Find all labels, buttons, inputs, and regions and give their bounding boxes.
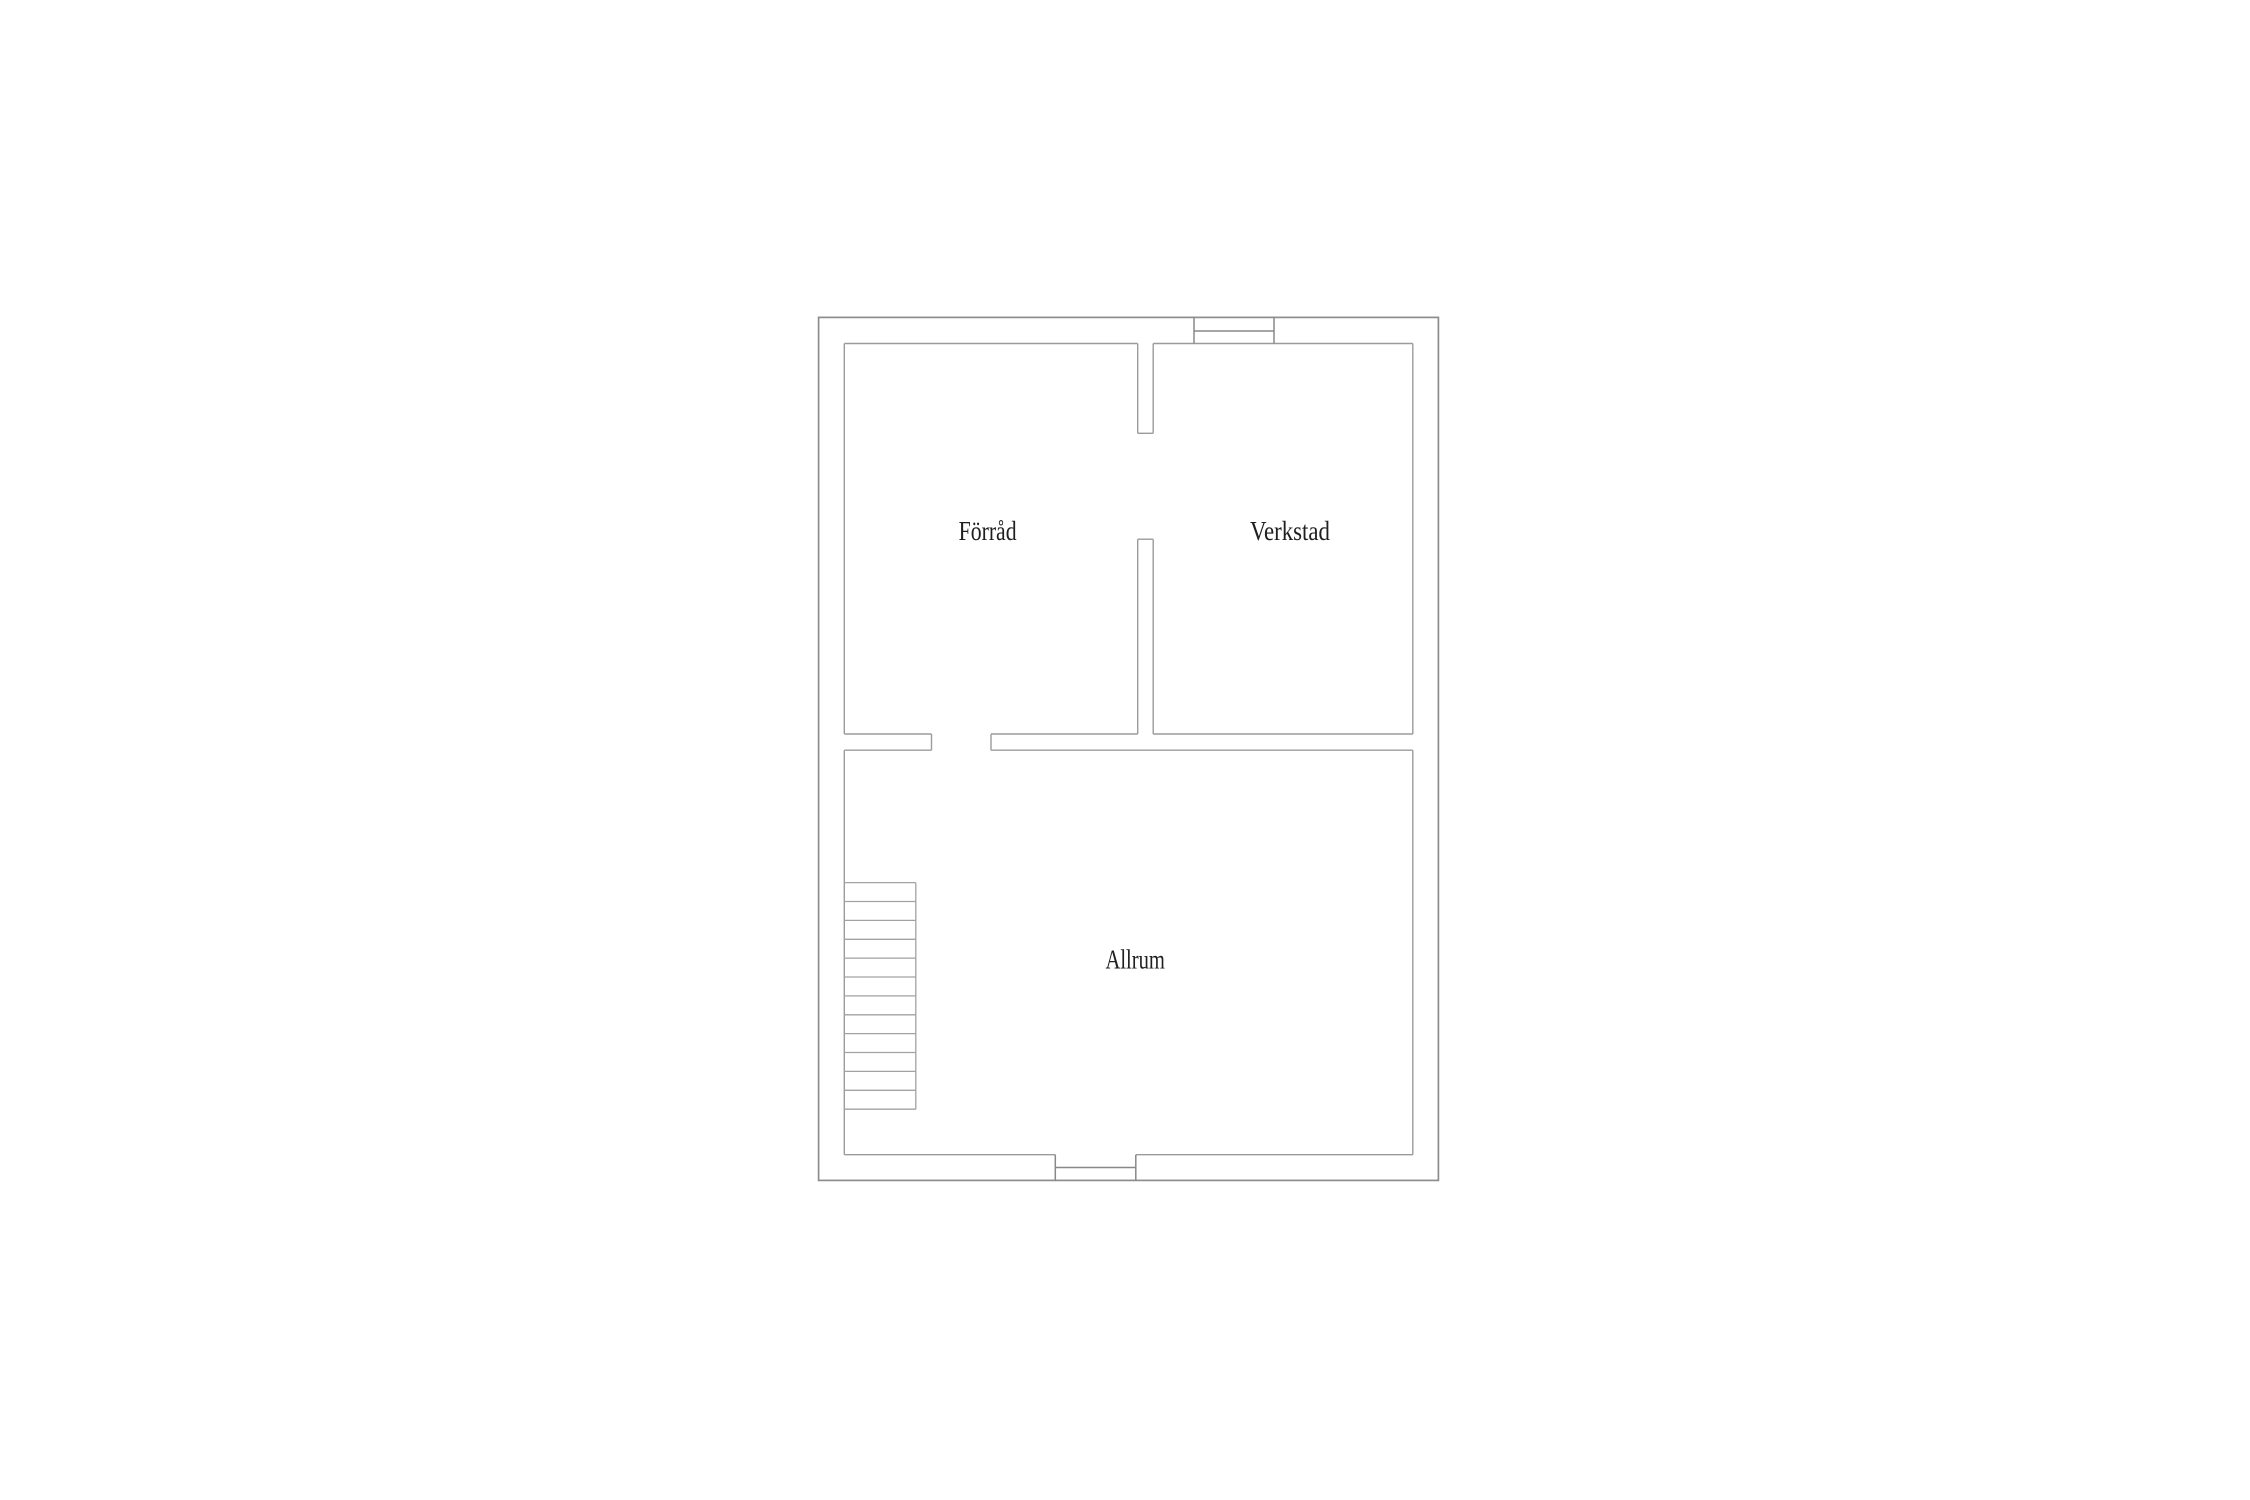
svg-text:Verkstad: Verkstad: [1250, 516, 1330, 546]
svg-text:Förråd: Förråd: [959, 516, 1017, 546]
svg-text:Allrum: Allrum: [1105, 944, 1165, 974]
